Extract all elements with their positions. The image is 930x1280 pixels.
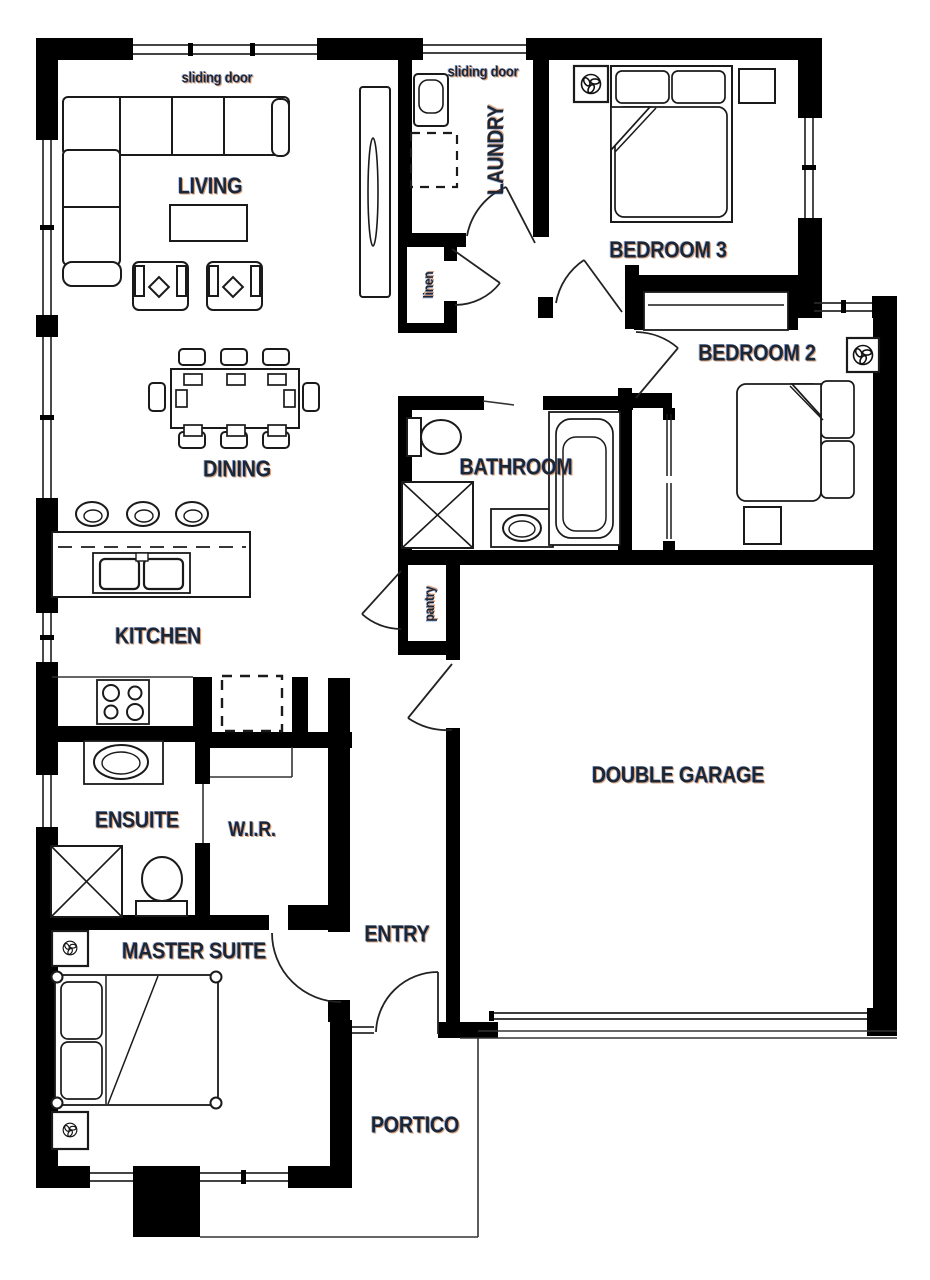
label-dining: DINING bbox=[203, 456, 271, 483]
pendant-lights bbox=[76, 502, 208, 526]
pantry-door bbox=[362, 571, 401, 629]
bedside-table bbox=[739, 69, 775, 103]
tv-unit bbox=[360, 87, 390, 297]
label-living: LIVING bbox=[178, 173, 242, 200]
garage-door bbox=[489, 1011, 872, 1021]
cooktop bbox=[97, 680, 149, 724]
label-laundry: LAUNDRY bbox=[483, 105, 509, 195]
linen-door bbox=[452, 249, 500, 305]
label-sliding-door-laundry: sliding door bbox=[448, 64, 519, 81]
label-double-garage: DOUBLE GARAGE bbox=[592, 762, 764, 789]
label-linen: linen bbox=[420, 272, 436, 299]
vanity bbox=[84, 741, 163, 784]
laundry-door bbox=[467, 187, 535, 243]
shower bbox=[51, 846, 122, 917]
label-wir: W.I.R. bbox=[228, 818, 276, 842]
front-door bbox=[376, 972, 438, 1034]
toilet bbox=[407, 418, 461, 456]
label-kitchen: KITCHEN bbox=[115, 623, 201, 650]
shower bbox=[402, 482, 473, 548]
toilet bbox=[136, 857, 187, 916]
vanity bbox=[491, 509, 553, 547]
label-bathroom: BATHROOM bbox=[460, 454, 573, 481]
robe-doors bbox=[667, 414, 671, 539]
bedroom2-door bbox=[636, 332, 678, 398]
bed bbox=[611, 66, 732, 222]
laundry-fixtures bbox=[411, 74, 457, 187]
label-bedroom2: BEDROOM 2 bbox=[698, 340, 815, 367]
bedside-table bbox=[744, 507, 781, 544]
bedroom2-furniture bbox=[667, 338, 879, 544]
master-door bbox=[272, 933, 341, 1002]
robe bbox=[644, 292, 788, 330]
label-master-suite: MASTER SUITE bbox=[122, 938, 266, 965]
island-bench bbox=[52, 532, 250, 597]
armchair bbox=[133, 262, 188, 310]
label-portico: PORTICO bbox=[371, 1112, 459, 1139]
label-bedroom3: BEDROOM 3 bbox=[609, 237, 726, 264]
floor-plan: LIVING LAUNDRY BEDROOM 3 BEDROOM 2 DININ… bbox=[0, 0, 930, 1280]
label-pantry: pantry bbox=[421, 586, 437, 621]
bed bbox=[52, 972, 222, 1109]
bed bbox=[737, 381, 854, 501]
label-sliding-door-living: sliding door bbox=[182, 70, 253, 87]
bedroom3-door bbox=[556, 260, 622, 312]
dining-furniture bbox=[149, 349, 319, 448]
fridge-space bbox=[222, 676, 282, 731]
garage-access-door bbox=[408, 664, 452, 730]
washer-space bbox=[411, 133, 457, 187]
kitchen-furniture bbox=[52, 502, 282, 731]
label-entry: ENTRY bbox=[364, 921, 429, 948]
label-ensuite: ENSUITE bbox=[95, 807, 179, 834]
armchair bbox=[207, 262, 262, 310]
